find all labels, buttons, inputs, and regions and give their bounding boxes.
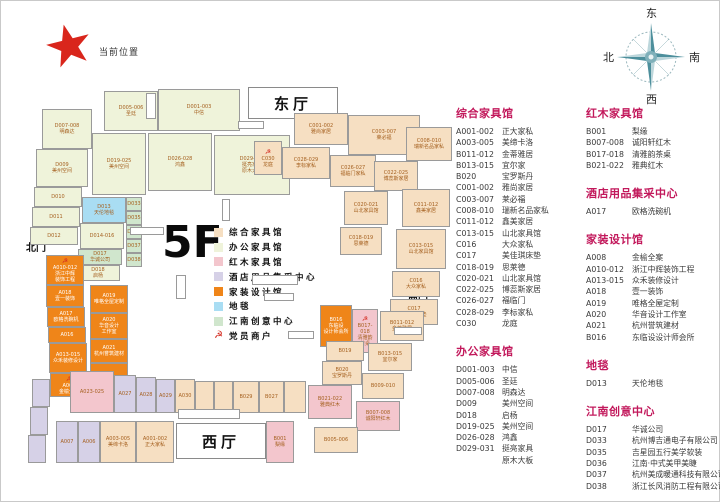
shop-code: D018 bbox=[456, 410, 502, 421]
shop-code: A020 bbox=[586, 309, 632, 320]
shop-cell-A018: A018壹一装饰 bbox=[46, 285, 84, 307]
legend-item: 江南创意中心 bbox=[214, 314, 317, 329]
shop-code: B021-022 bbox=[586, 160, 632, 171]
shop-cell-D037: D037 bbox=[126, 239, 142, 253]
directory-item: B020宝罗斯丹 bbox=[456, 171, 582, 182]
shop-name: 杭州誉筑建材 bbox=[94, 351, 124, 357]
directory-section: 家装设计馆A008金榆全案A010-012浙江中辉装饰工程A013-015众禾装… bbox=[586, 231, 720, 342]
facility-block bbox=[394, 327, 422, 335]
shop-name: 瑞新名品家私 bbox=[502, 205, 549, 216]
directory-item: D033杭州博吉通电子有限公司 bbox=[586, 435, 720, 446]
shop-name: 清雅韵茶桌 bbox=[632, 149, 671, 160]
directory-item: B013-015宜尔家 bbox=[456, 160, 582, 171]
directory-item: D001-003中信 bbox=[456, 364, 582, 375]
shop-code: D007-008 bbox=[456, 387, 502, 398]
shop-cell-A019: A019唯格全屋定制 bbox=[90, 285, 128, 313]
shop-code: D013 bbox=[586, 378, 632, 389]
directory-item: D007-008明森达 bbox=[456, 387, 582, 398]
shop-code: A003-005 bbox=[456, 137, 502, 148]
shop-name: 华音设计工作室 bbox=[632, 309, 687, 320]
party-emblem-icon: ☭ bbox=[214, 331, 225, 341]
shop-name: 美州空间 bbox=[502, 398, 533, 409]
shop-name: 浙江中辉 装饰工程 bbox=[55, 271, 75, 283]
facility-block bbox=[238, 121, 264, 129]
legend-swatch-hm bbox=[214, 257, 223, 266]
shop-code: D010 bbox=[51, 194, 64, 200]
shop-name: 福临门家私 bbox=[340, 171, 365, 177]
shop-code: B013-015 bbox=[456, 160, 502, 171]
shop-cell-D026-028: D026-028鸿鑫 bbox=[148, 133, 212, 191]
facility-block bbox=[252, 275, 298, 285]
shop-code: B020 bbox=[456, 171, 502, 182]
shop-code: A006 bbox=[83, 439, 96, 445]
shop-code: A029 bbox=[159, 393, 172, 399]
shop-name: 天伦地毯 bbox=[632, 378, 663, 389]
section-title: 江南创意中心 bbox=[586, 403, 720, 419]
legend-swatch-jz bbox=[214, 287, 223, 296]
shop-code: B007-008 bbox=[586, 137, 632, 148]
shop-code: C017 bbox=[456, 250, 502, 261]
shop-code: A027 bbox=[119, 391, 132, 397]
directory-item: A010-012浙江中辉装饰工程 bbox=[586, 264, 720, 275]
shop-code: B029 bbox=[240, 394, 253, 400]
shop-cell-D038: D038 bbox=[126, 253, 142, 267]
shop-cell-C016: C016大众家私 bbox=[392, 271, 440, 297]
shop-name: 山北家具馆 bbox=[408, 249, 433, 255]
shop-name: 山北家具馆 bbox=[502, 273, 541, 284]
directory-item: B016东临设设计师会所 bbox=[586, 332, 720, 343]
legend-swatch-zh bbox=[214, 228, 223, 237]
shop-code: D035 bbox=[586, 447, 632, 458]
legend-swatch-dt bbox=[214, 302, 223, 311]
directory-item: C030龙庭 bbox=[456, 318, 582, 329]
shop-cell-C013-015: C013-015山北家具馆 bbox=[396, 229, 446, 269]
directory-item: C017美佳琪床垫 bbox=[456, 250, 582, 261]
shop-name: 美缔卡洛 bbox=[502, 137, 533, 148]
shop-cell-C022-025: C022-025博蕊斯家居 bbox=[374, 161, 418, 191]
shop-cell-B009-010: B009-010 bbox=[362, 373, 404, 399]
shop-name: 正大家私 bbox=[502, 126, 533, 137]
facility-block bbox=[146, 93, 156, 119]
shop-name: 宝罗斯丹 bbox=[332, 373, 352, 379]
shop-name: 思莱德 bbox=[502, 262, 525, 273]
directory-item: A008金榆全案 bbox=[586, 252, 720, 263]
shop-name: 浙江长风消防工程有限公司 bbox=[632, 481, 720, 492]
shop-name: 诚阳轩红木 bbox=[632, 137, 671, 148]
shop-code: B001 bbox=[586, 126, 632, 137]
shop-name: 莱必福 bbox=[502, 194, 525, 205]
shop-name: 鑫美家居 bbox=[416, 208, 436, 214]
directory-section: 地毯D013天伦地毯 bbox=[586, 357, 720, 389]
legend-swatch-cn bbox=[214, 317, 223, 326]
shop-cell-B011-012: B011-012金蒂雅居 bbox=[380, 311, 424, 341]
shop-cell-B020: B020宝罗斯丹 bbox=[322, 361, 362, 385]
west-hall: 西厅 bbox=[176, 423, 266, 459]
shop-name: 雅典红木 bbox=[632, 160, 663, 171]
shop-name: 吉星园五行美学软装 bbox=[632, 447, 702, 458]
shop-code: B011-012 bbox=[456, 149, 502, 160]
shop-cell-A006: A006 bbox=[78, 421, 100, 463]
shop-name: 莱必福 bbox=[376, 135, 391, 141]
shop-name: 东临设 设计师会所 bbox=[323, 323, 348, 335]
shop-code: A007 bbox=[61, 439, 74, 445]
shop-code: D029-031 bbox=[456, 443, 502, 454]
compass-rose: 东 北 南 西 bbox=[599, 7, 703, 105]
shop-cell-B021-022: B021-022雅典红木 bbox=[308, 385, 352, 419]
directory-section: 办公家具馆D001-003中信D005-006圣廷D007-008明森达D009… bbox=[456, 343, 582, 466]
directory-section: 综合家具馆A001-002正大家私A003-005美缔卡洛B011-012金蒂雅… bbox=[456, 105, 582, 329]
shop-code: A008 bbox=[586, 252, 632, 263]
current-location-label: 当前位置 bbox=[99, 45, 139, 58]
shop-name: 华诚公司 bbox=[90, 257, 110, 263]
directory-section: 红木家具馆B001梨缘B007-008诚阳轩红木B017-018清雅韵茶桌B02… bbox=[586, 105, 720, 171]
shop-cell-B001: B001梨缘 bbox=[266, 421, 294, 463]
shop-code: D019-025 bbox=[456, 421, 502, 432]
party-emblem-icon: ☭ bbox=[362, 316, 368, 323]
shop-name: 杭州誉筑建材 bbox=[632, 320, 679, 331]
shop-name: 浙江中辉装饰工程 bbox=[632, 264, 694, 275]
shop-code: C008-010 bbox=[456, 205, 502, 216]
shop-code: B019 bbox=[339, 348, 352, 354]
shop-name: 博蕊斯家居 bbox=[383, 176, 408, 182]
shop-name: 博蕊斯家居 bbox=[502, 284, 541, 295]
legend-item: 地毯 bbox=[214, 299, 317, 314]
shop-cell-A030: A030 bbox=[175, 379, 195, 413]
shop-code: A001-002 bbox=[456, 126, 502, 137]
shop-cell-B005-006: B005-006 bbox=[314, 427, 358, 453]
compass-east-label: 东 bbox=[646, 5, 657, 21]
shop-cell-A021: A021杭州誉筑建材 bbox=[90, 339, 128, 363]
shop-name: 挺亮家具 原木大板 bbox=[502, 443, 533, 466]
shop-name: 圣廷 bbox=[502, 376, 518, 387]
directory-item: C003-007莱必福 bbox=[456, 194, 582, 205]
party-emblem-icon: ☭ bbox=[265, 149, 271, 156]
legend-label: 地毯 bbox=[229, 300, 251, 312]
shop-name: 启杨 bbox=[93, 273, 103, 279]
shop-name: 中信 bbox=[194, 110, 204, 116]
shop-cell-D011: D011 bbox=[32, 207, 80, 227]
shop-code: A010-012 bbox=[586, 264, 632, 275]
shop-cell-D010: D010 bbox=[34, 187, 82, 207]
directory-item: D017华诚公司 bbox=[586, 424, 720, 435]
directory-item: A018壹一装饰 bbox=[586, 286, 720, 297]
facility-block bbox=[130, 227, 164, 235]
directory-item: A003-005美缔卡洛 bbox=[456, 137, 582, 148]
shop-name: 梨缘 bbox=[632, 126, 648, 137]
shop-name: 福临门 bbox=[502, 295, 525, 306]
shop-name: 大众家私 bbox=[406, 284, 426, 290]
directory-item: B017-018清雅韵茶桌 bbox=[586, 149, 720, 160]
shop-name: 壹一装饰 bbox=[632, 286, 663, 297]
directory-item: D019-025美州空间 bbox=[456, 421, 582, 432]
shop-name: 瑞新名品家私 bbox=[414, 144, 444, 150]
shop-name: 众禾装修设计 bbox=[53, 358, 83, 364]
shop-name: 美州空间 bbox=[502, 421, 533, 432]
shop-name: 圣廷 bbox=[126, 111, 136, 117]
shop-name: 诚阳轩红木 bbox=[365, 416, 390, 422]
shop-name: 启杨 bbox=[502, 410, 518, 421]
legend-label: 党员商户 bbox=[229, 330, 273, 342]
section-title: 综合家具馆 bbox=[456, 105, 582, 121]
shop-cell-A023-025: A023-025 bbox=[70, 371, 114, 413]
directory-item: C028-029李标家私 bbox=[456, 307, 582, 318]
shop-cell-A003-005: A003-005美缔卡洛 bbox=[100, 421, 136, 463]
facility-block bbox=[264, 293, 294, 301]
shop-name: 欧格洗碗机 bbox=[632, 206, 671, 217]
shop-cell-D013: D013天伦地毯 bbox=[82, 197, 126, 223]
shop-name: 鑫美家居 bbox=[502, 216, 533, 227]
shop-cell-C011-012: C011-012鑫美家居 bbox=[402, 189, 450, 227]
shop-code: A017 bbox=[586, 206, 632, 217]
facility-block bbox=[178, 409, 240, 419]
shop-name: 美佳琪床垫 bbox=[502, 250, 541, 261]
directory-item: D009美州空间 bbox=[456, 398, 582, 409]
shop-name: 鸿鑫 bbox=[502, 432, 518, 443]
shop-cell-D035: D035 bbox=[126, 211, 142, 225]
shop-name: 天伦地毯 bbox=[94, 210, 114, 216]
shop-cell-A016: A016 bbox=[48, 327, 86, 343]
directory-item: B021-022雅典红木 bbox=[586, 160, 720, 171]
facility-block bbox=[288, 331, 314, 339]
shop-name: 李标家私 bbox=[296, 163, 316, 169]
shop-name: 龙庭 bbox=[263, 162, 273, 168]
directory-item: C013-015山北家具馆 bbox=[456, 228, 582, 239]
facility-block bbox=[222, 199, 230, 221]
compass-south-label: 南 bbox=[689, 49, 700, 65]
shop-cell-D017: D017华诚公司 bbox=[78, 249, 122, 265]
shop-code: C030 bbox=[456, 318, 502, 329]
legend-swatch-bg bbox=[214, 243, 223, 252]
shop-name: 中信 bbox=[502, 364, 518, 375]
directory-item: B007-008诚阳轩红木 bbox=[586, 137, 720, 148]
shop-code: A021 bbox=[586, 320, 632, 331]
section-title: 红木家具馆 bbox=[586, 105, 720, 121]
shop-cell-A007: A007 bbox=[56, 421, 78, 463]
shop-name: 龙庭 bbox=[502, 318, 518, 329]
shop-cell-D012: D012 bbox=[30, 227, 78, 245]
shop-code: C018-019 bbox=[456, 262, 502, 273]
shop-cell-C030: ☭C030龙庭 bbox=[254, 141, 282, 175]
section-title: 办公家具馆 bbox=[456, 343, 582, 359]
shop-code: C020-021 bbox=[456, 273, 502, 284]
directory-item: C016大众家私 bbox=[456, 239, 582, 250]
directory-item: C020-021山北家具馆 bbox=[456, 273, 582, 284]
shop-name: 明森达 bbox=[502, 387, 525, 398]
directory-item: A001-002正大家私 bbox=[456, 126, 582, 137]
shop-code: C001-002 bbox=[456, 182, 502, 193]
shop-name: 雅尚家居 bbox=[311, 129, 331, 135]
shop-code: C011-012 bbox=[456, 216, 502, 227]
shop-code: A030 bbox=[179, 393, 192, 399]
shop-code: C028-029 bbox=[456, 307, 502, 318]
directory-item: C001-002雅尚家居 bbox=[456, 182, 582, 193]
shop-cell-C026-027: C026-027福临门家私 bbox=[330, 155, 376, 187]
directory-column-1: 综合家具馆A001-002正大家私A003-005美缔卡洛B011-012金蒂雅… bbox=[456, 105, 582, 466]
shop-cell bbox=[284, 381, 306, 413]
directory-item: D035吉星园五行美学软装 bbox=[586, 447, 720, 458]
shop-name: 宜尔家 bbox=[502, 160, 525, 171]
shop-cell-A020: A020华音设计 工作室 bbox=[90, 313, 128, 339]
shop-code: D011 bbox=[49, 214, 62, 220]
legend-swatch-jd bbox=[214, 272, 223, 281]
shop-name: 华音设计 工作室 bbox=[99, 323, 119, 335]
legend-item: 红木家具馆 bbox=[214, 255, 317, 270]
directory-item: D018启杨 bbox=[456, 410, 582, 421]
directory-item: A019唯格全屋定制 bbox=[586, 298, 720, 309]
shop-name: 众禾装修设计 bbox=[632, 275, 679, 286]
shop-cell-D019-025: D019-025美州空间 bbox=[92, 133, 146, 195]
shop-cell bbox=[28, 435, 46, 463]
shop-cell-B027: B027 bbox=[259, 381, 284, 413]
party-emblem-icon: ☭ bbox=[62, 258, 68, 265]
shop-cell bbox=[32, 379, 50, 407]
section-title: 酒店用品集采中心 bbox=[586, 185, 720, 201]
directory-item: C026-027福临门 bbox=[456, 295, 582, 306]
shop-code: B009-010 bbox=[371, 383, 395, 389]
shop-code: D037 bbox=[127, 243, 140, 249]
shop-code: A018 bbox=[586, 286, 632, 297]
shop-name: 唯格全屋定制 bbox=[94, 299, 124, 305]
legend-label: 综合家具馆 bbox=[229, 226, 284, 238]
shop-name: 杭州美成暖通科技有限公司 bbox=[632, 469, 720, 480]
directory-item: D029-031挺亮家具 原木大板 bbox=[456, 443, 582, 466]
directory-item: D013天伦地毯 bbox=[586, 378, 720, 389]
legend-item: 办公家具馆 bbox=[214, 240, 317, 255]
shop-code: D001-003 bbox=[456, 364, 502, 375]
shop-name: 欧格洗碗机 bbox=[53, 317, 78, 323]
directory-column-2: 红木家具馆B001梨缘B007-008诚阳轩红木B017-018清雅韵茶桌B02… bbox=[586, 105, 720, 492]
shop-code: D026-028 bbox=[456, 432, 502, 443]
shop-cell-B019: B019 bbox=[326, 341, 364, 361]
shop-code: D012 bbox=[47, 233, 60, 239]
shop-name: 美缔卡洛 bbox=[108, 442, 128, 448]
shop-name: 大众家私 bbox=[502, 239, 533, 250]
shop-cell-D033: D033 bbox=[126, 197, 142, 211]
shop-cell-D007-008: D007-008明森达 bbox=[42, 109, 92, 149]
shop-cell-A029: A029 bbox=[156, 379, 175, 413]
shop-code: C022-025 bbox=[456, 284, 502, 295]
shop-name: 宝罗斯丹 bbox=[502, 171, 533, 182]
directory-section: 酒店用品集采中心A017欧格洗碗机 bbox=[586, 185, 720, 217]
shop-code: A013-015 bbox=[586, 275, 632, 286]
shop-code: A028 bbox=[140, 392, 153, 398]
current-location-star-icon bbox=[40, 18, 98, 74]
directory-item: D005-006圣廷 bbox=[456, 376, 582, 387]
shop-name: 江南·中式美甲美睫 bbox=[632, 458, 697, 469]
shop-name: 金榆全案 bbox=[632, 252, 663, 263]
shop-cell-D014-016: D014-016 bbox=[80, 223, 124, 249]
shop-code: D005-006 bbox=[456, 376, 502, 387]
shop-cell-D001-003: D001-003中信 bbox=[158, 89, 240, 131]
legend-label: 红木家具馆 bbox=[229, 256, 284, 268]
shop-cell-A010-012: ☭A010-012浙江中辉 装饰工程 bbox=[46, 255, 84, 285]
shop-cell-C008-010: C008-010瑞新名品家私 bbox=[406, 127, 452, 161]
facility-block bbox=[176, 275, 186, 299]
shop-name: 山北家具馆 bbox=[353, 208, 378, 214]
shop-cell-B007-008: B007-008诚阳轩红木 bbox=[356, 401, 400, 431]
shop-name: 美州空间 bbox=[109, 164, 129, 170]
legend-label: 江南创意中心 bbox=[229, 315, 295, 327]
shop-name: 梨缘 bbox=[275, 442, 285, 448]
shop-name: 金蒂雅居 bbox=[502, 149, 533, 160]
directory-item: B001梨缘 bbox=[586, 126, 720, 137]
shop-cell-A028: A028 bbox=[136, 377, 156, 413]
shop-code: C026-027 bbox=[456, 295, 502, 306]
shop-name: 雅尚家居 bbox=[502, 182, 533, 193]
shop-name: 正大家私 bbox=[145, 442, 165, 448]
shop-code: C013-015 bbox=[456, 228, 502, 239]
shop-name: 唯格全屋定制 bbox=[632, 298, 679, 309]
shop-code: B017-018 bbox=[353, 323, 377, 335]
shop-name: 美州空间 bbox=[52, 168, 72, 174]
directory-item: D026-028鸿鑫 bbox=[456, 432, 582, 443]
shop-code: C003-007 bbox=[456, 194, 502, 205]
shop-cell-A013-015: A013-015众禾装修设计 bbox=[49, 343, 87, 373]
shop-cell bbox=[30, 407, 48, 435]
shop-code: A019 bbox=[586, 298, 632, 309]
directory-item: A013-015众禾装修设计 bbox=[586, 275, 720, 286]
shop-cell-A017: A017欧格洗碗机 bbox=[47, 307, 85, 327]
shop-cell-C018-019: C018-019思莱德 bbox=[340, 227, 382, 255]
directory-section: 江南创意中心D017华诚公司D033杭州博吉通电子有限公司D035吉星园五行美学… bbox=[586, 403, 720, 492]
shop-code: A023-025 bbox=[80, 389, 104, 395]
directory-item: C022-025博蕊斯家居 bbox=[456, 284, 582, 295]
section-title: 家装设计馆 bbox=[586, 231, 720, 247]
shop-code: D037 bbox=[586, 469, 632, 480]
shop-code: D033 bbox=[127, 201, 140, 207]
shop-code: D017 bbox=[586, 424, 632, 435]
shop-name: 杭州博吉通电子有限公司 bbox=[632, 435, 718, 446]
directory-item: A017欧格洗碗机 bbox=[586, 206, 720, 217]
shop-code: B027 bbox=[265, 394, 278, 400]
shop-name: 山北家具馆 bbox=[502, 228, 541, 239]
shop-code: D033 bbox=[586, 435, 632, 446]
shop-cell-C020-021: C020-021山北家具馆 bbox=[344, 191, 388, 225]
shop-code: D014-016 bbox=[90, 233, 115, 239]
shop-cell-C028-029: C028-029李标家私 bbox=[282, 147, 330, 179]
legend-label: 办公家具馆 bbox=[229, 241, 284, 253]
shop-name: 鸿鑫 bbox=[175, 162, 185, 168]
shop-cell-A027: A027 bbox=[114, 375, 136, 413]
directory-item: C011-012鑫美家居 bbox=[456, 216, 582, 227]
shop-name: 宜尔家 bbox=[382, 357, 397, 363]
shop-name: 华诚公司 bbox=[632, 424, 663, 435]
shop-name: 李标家私 bbox=[502, 307, 533, 318]
directory-item: C018-019思莱德 bbox=[456, 262, 582, 273]
legend-item: 综合家具馆 bbox=[214, 225, 317, 240]
shop-name: 思莱德 bbox=[353, 241, 368, 247]
shop-code: A016 bbox=[61, 332, 74, 338]
shop-cell-C001-002: C001-002雅尚家居 bbox=[294, 113, 348, 145]
shop-cell-A001-002: A001-002正大家私 bbox=[136, 421, 174, 463]
shop-cell-D009: D009美州空间 bbox=[36, 149, 88, 187]
directory-item: D038浙江长风消防工程有限公司 bbox=[586, 481, 720, 492]
shop-name: 东临设设计师会所 bbox=[632, 332, 694, 343]
shop-cell-B013-015: B013-015宜尔家 bbox=[368, 343, 412, 371]
shop-code: D038 bbox=[586, 481, 632, 492]
shop-code: B005-006 bbox=[324, 437, 348, 443]
directory-item: D036江南·中式美甲美睫 bbox=[586, 458, 720, 469]
shop-code: D009 bbox=[456, 398, 502, 409]
shop-name: 雅典红木 bbox=[320, 402, 340, 408]
shop-code: D036 bbox=[586, 458, 632, 469]
directory-item: C008-010瑞新名品家私 bbox=[456, 205, 582, 216]
directory-poster: 当前位置 东 北 南 西 东厅 西厅 北门 南门 5F bbox=[0, 0, 720, 502]
shop-name: 明森达 bbox=[59, 129, 74, 135]
shop-code: B016 bbox=[586, 332, 632, 343]
directory-item: D037杭州美成暖通科技有限公司 bbox=[586, 469, 720, 480]
shop-code: B017-018 bbox=[586, 149, 632, 160]
